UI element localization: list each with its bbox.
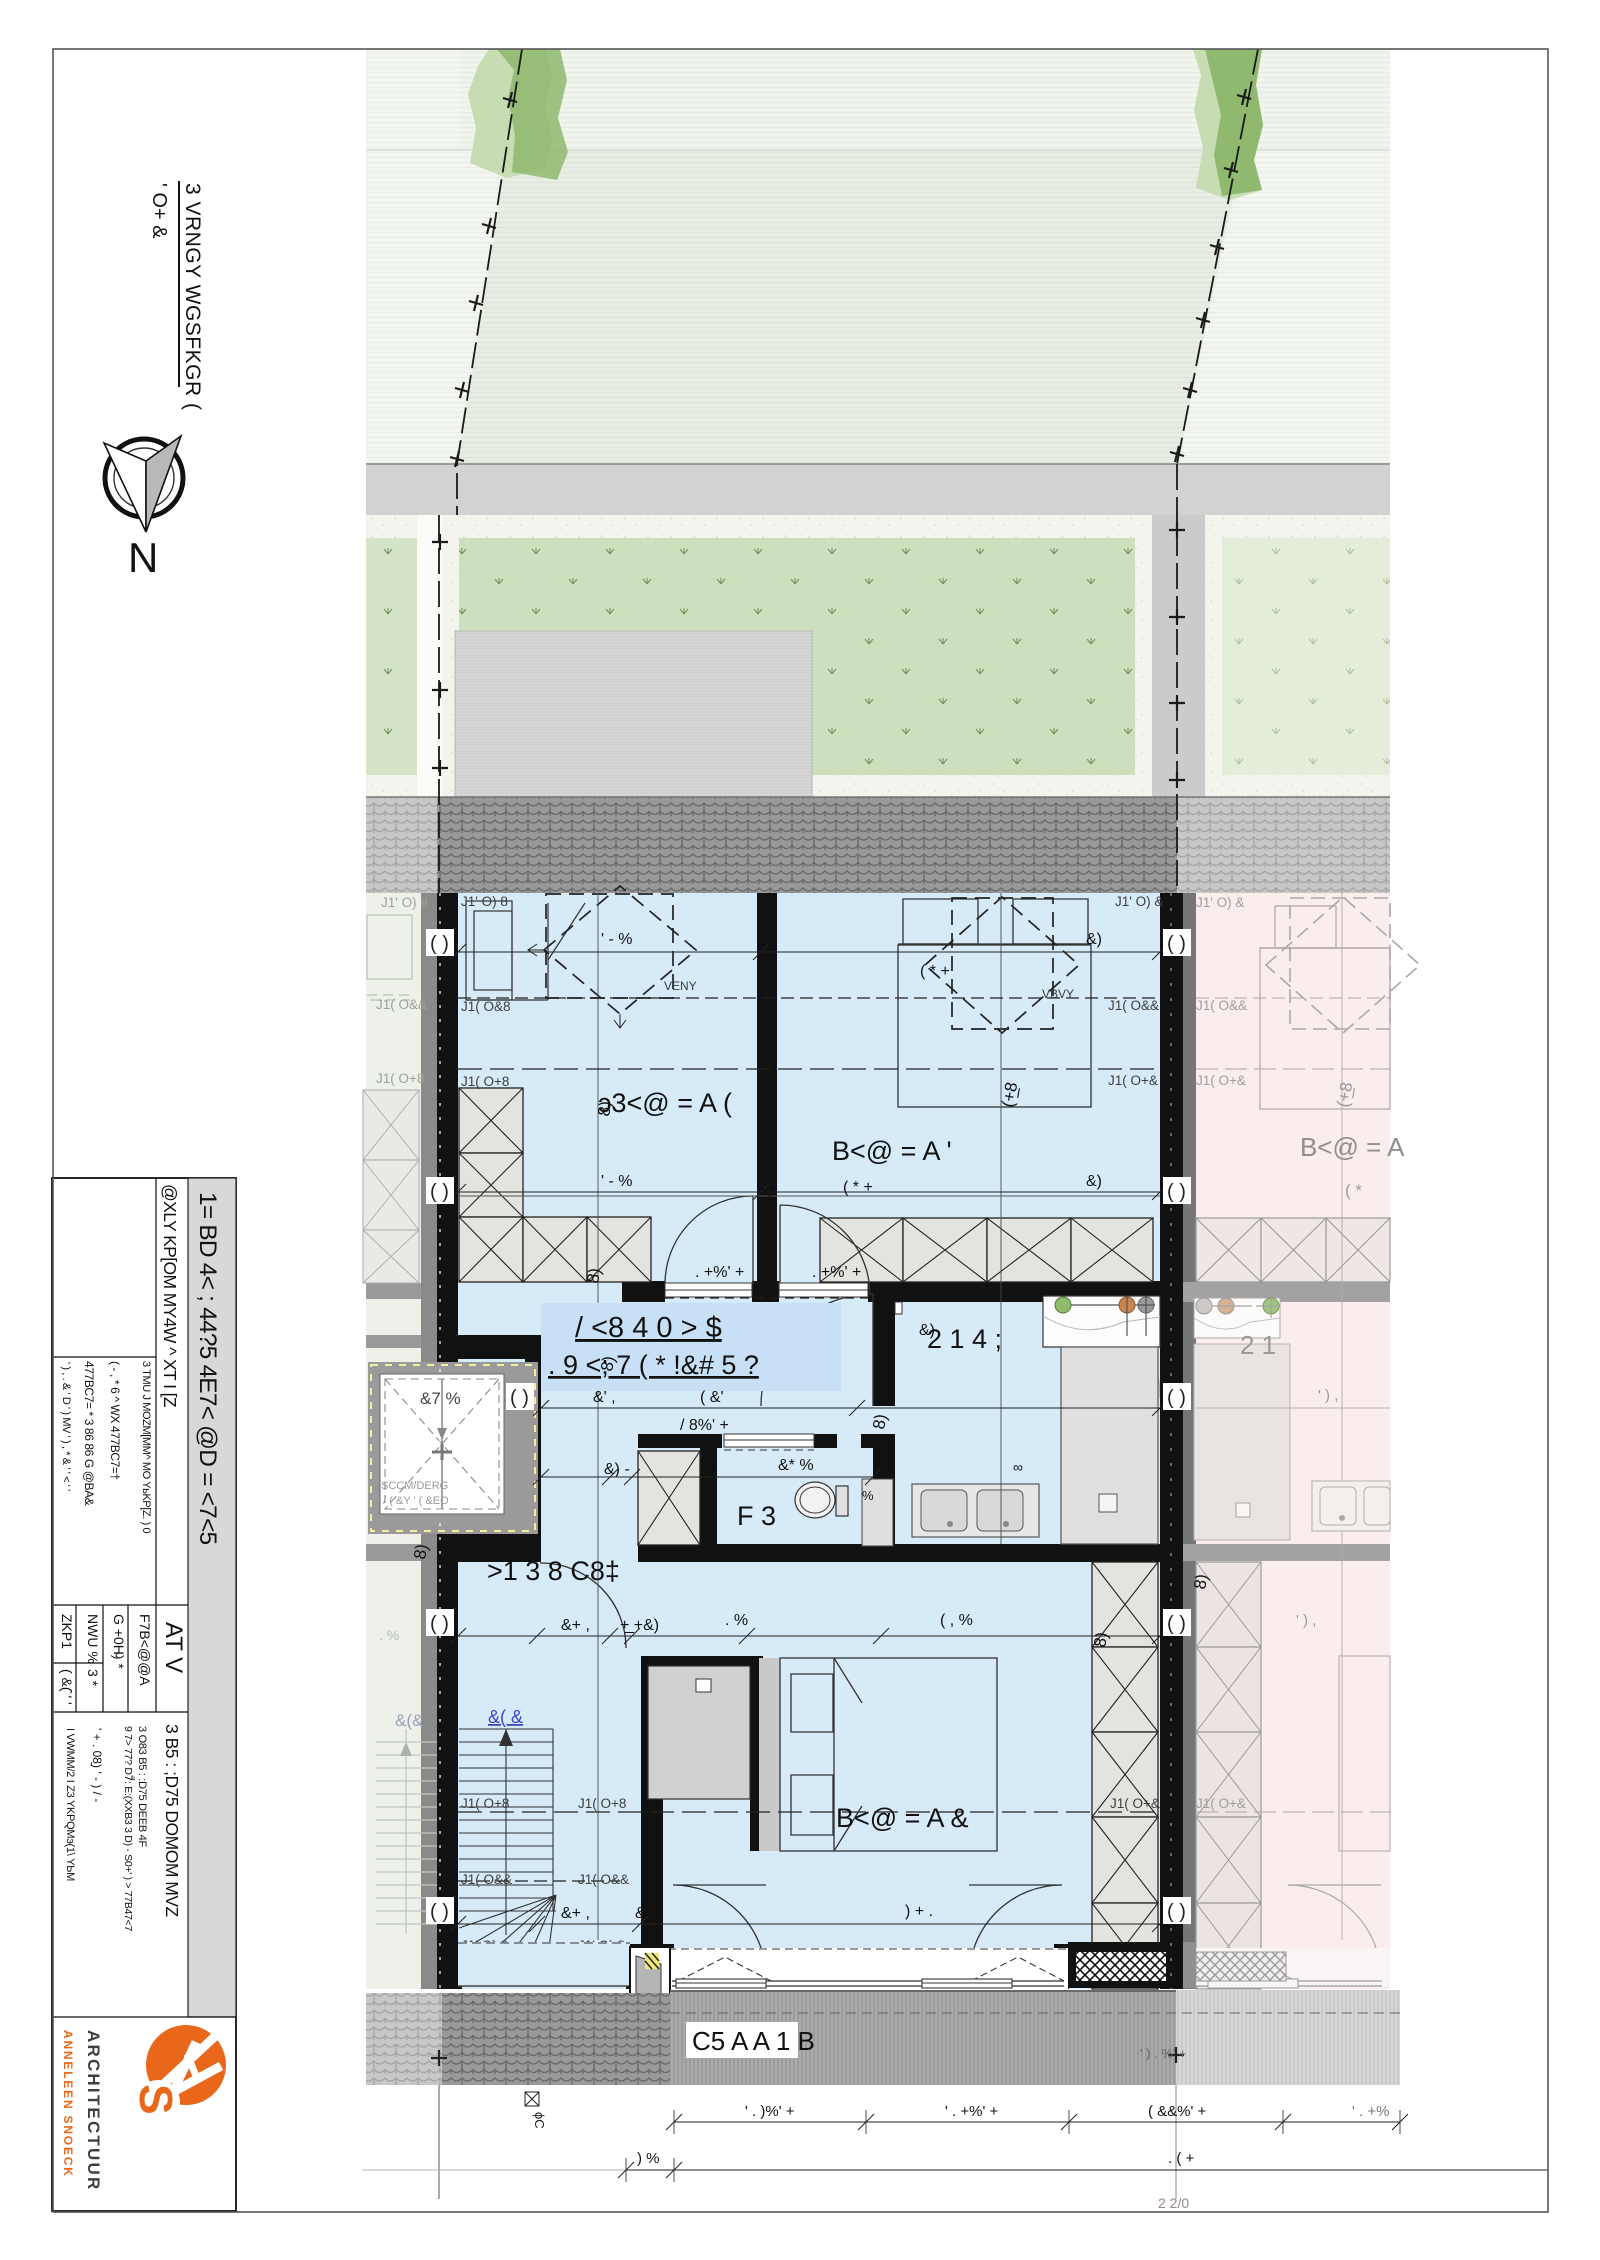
svg-text:' ) . %' +: ' ) . %' + xyxy=(1140,2046,1187,2061)
svg-text:3 *: 3 * xyxy=(85,1669,101,1687)
svg-text:&+ ,: &+ , xyxy=(561,1905,590,1922)
svg-text:SCCM/DERG: SCCM/DERG xyxy=(381,1480,448,1492)
svg-text:( &': ( &' xyxy=(700,1389,724,1406)
svg-text:J1( O+8: J1( O+8 xyxy=(461,1796,509,1811)
svg-text:' - %: ' - % xyxy=(601,931,633,948)
svg-text:1= BD 4< ; 44?5 4E7< @D = <7<: 1= BD 4< ; 44?5 4E7< @D = <7<5 xyxy=(194,1192,221,1544)
svg-text:&( &: &( & xyxy=(488,1707,523,1727)
svg-text:( * +: ( * + xyxy=(843,1179,873,1196)
svg-text:NWU %: NWU % xyxy=(85,1614,101,1664)
svg-text:J1( O&&: J1( O&& xyxy=(578,1872,629,1887)
svg-text:B<@ = A ': B<@ = A ' xyxy=(832,1136,952,1166)
svg-text:. %: . % xyxy=(725,1612,748,1629)
svg-text:( ): ( ) xyxy=(430,933,449,955)
svg-text:J1' O) &: J1' O) & xyxy=(1196,895,1244,910)
svg-text:B<@ = A &: B<@ = A & xyxy=(836,1803,969,1833)
svg-text:F 3: F 3 xyxy=(737,1501,776,1531)
svg-text:2 2/0: 2 2/0 xyxy=(1158,2195,1189,2211)
svg-text:) %: ) % xyxy=(637,2150,660,2167)
svg-text:( ): ( ) xyxy=(510,1387,529,1409)
svg-text:J1( O&&: J1( O&& xyxy=(376,997,427,1012)
svg-text:' - %: ' - % xyxy=(601,1173,633,1190)
svg-text:&): &) xyxy=(635,1905,651,1922)
svg-text:' . +%: ' . +% xyxy=(1352,2103,1389,2120)
svg-text:( ): ( ) xyxy=(430,1901,449,1923)
svg-text:( - , * 6 ^ WX 477BC7=†: ( - , * 6 ^ WX 477BC7=† xyxy=(108,1361,122,1480)
svg-text:J1' O) 8: J1' O) 8 xyxy=(381,895,428,910)
svg-text:&): &) xyxy=(1086,1173,1102,1190)
svg-text:J1( O+8: J1( O+8 xyxy=(578,1796,626,1811)
svg-text:S: S xyxy=(130,2084,182,2115)
svg-text:VBVY: VBVY xyxy=(1042,987,1074,1001)
svg-text:' ) ,: ' ) , xyxy=(1296,1612,1316,1629)
svg-text:' ) ,: ' ) , xyxy=(1318,1387,1338,1404)
svg-text:) + .: ) + . xyxy=(905,1903,933,1920)
svg-text:F7B<@@A: F7B<@@A xyxy=(137,1614,153,1686)
svg-text:J1( O+&: J1( O+& xyxy=(1196,1073,1246,1088)
svg-text:J1( O&&: J1( O&& xyxy=(461,1872,512,1887)
svg-text:3 O83 B5 : :D75 DEEB 4F: 3 O83 B5 : :D75 DEEB 4F xyxy=(136,1726,148,1847)
svg-text:I VWMM/2 I Z3 YKPQMэ(1\ YЬM: I VWMM/2 I Z3 YKPQMэ(1\ YЬM xyxy=(64,1728,76,1881)
svg-text:G +0H̴) *: G +0H̴) * xyxy=(111,1614,127,1669)
svg-text:/ 8%' +: / 8%' + xyxy=(680,1417,729,1434)
svg-text:' + . 08̠) ' - ) / -: ' + . 08̠) ' - ) / - xyxy=(90,1728,104,1802)
svg-text:. +%' +: . +%' + xyxy=(695,1264,744,1281)
svg-text:( * +: ( * + xyxy=(920,963,950,980)
svg-text:>1 3 8 C8‡: >1 3 8 C8‡ xyxy=(487,1556,620,1586)
svg-text:J1( O+&: J1( O+& xyxy=(1108,1073,1158,1088)
svg-text:' O+ &: ' O+ & xyxy=(148,183,170,239)
svg-text:( &&%' +: ( &&%' + xyxy=(1148,2103,1207,2120)
svg-text:&* %: &* % xyxy=(778,1457,814,1474)
svg-text:AT V: AT V xyxy=(160,1622,187,1673)
svg-text:( ): ( ) xyxy=(1167,1613,1186,1635)
svg-text:ϕC: ϕC xyxy=(532,2112,547,2129)
svg-text:&) -: &) - xyxy=(604,1461,630,1478)
svg-text:( ): ( ) xyxy=(1167,1181,1186,1203)
svg-text:' / ( &Y ' ( &EO: ' / ( &Y ' ( &EO xyxy=(378,1495,449,1507)
svg-text:ZKP1: ZKP1 xyxy=(59,1614,75,1649)
svg-text:( ): ( ) xyxy=(430,1613,449,1635)
svg-text:J1( O&8: J1( O&8 xyxy=(461,999,511,1014)
svg-text:( ): ( ) xyxy=(430,1181,449,1203)
svg-text:J1' O) 8: J1' O) 8 xyxy=(461,894,508,909)
svg-text:@XLY KP[OM MY4W ^ XT I [Z: @XLY KP[OM MY4W ^ XT I [Z xyxy=(160,1184,180,1408)
svg-text:477BC7= * 3 86 86 G @BA&: 477BC7= * 3 86 86 G @BA& xyxy=(82,1361,96,1506)
svg-text:' . )%' +: ' . )%' + xyxy=(745,2103,795,2120)
svg-text:N: N xyxy=(128,534,158,581)
svg-text:. ( +: . ( + xyxy=(1168,2150,1194,2167)
svg-text:&): &) xyxy=(1086,931,1102,948)
svg-text:J1( O+8: J1( O+8 xyxy=(461,1074,509,1089)
svg-text:2 1 4 ;: 2 1 4 ; xyxy=(927,1324,1002,1354)
svg-text:ARCHITECTUUR: ARCHITECTUUR xyxy=(84,2030,103,2191)
svg-text:J1' O) &: J1' O) & xyxy=(1115,894,1163,909)
svg-text:%: % xyxy=(862,1488,874,1503)
svg-text:&(&: &(& xyxy=(395,1711,424,1730)
svg-text:9 7> 77? D7⃗: E:(XXB3 3 D) -: 9 7> 77? D7⃗: E:(XXB3 3 D) - S0+' ) > 77… xyxy=(122,1726,136,1931)
svg-text:C5 A A 1 B: C5 A A 1 B xyxy=(692,2026,815,2056)
svg-text:3 VRNGY WGSFKGR (: 3 VRNGY WGSFKGR ( xyxy=(181,183,204,410)
svg-text:J1( O&&: J1( O&& xyxy=(1196,998,1247,1013)
svg-text:3 B5 : ;D75 DOMOM MVZ: 3 B5 : ;D75 DOMOM MVZ xyxy=(162,1724,182,1918)
svg-text:+̲ +&): +̲ +&) xyxy=(620,1617,659,1634)
svg-text:' . +%' +: ' . +%' + xyxy=(945,2103,998,2120)
svg-text:2 1: 2 1 xyxy=(1240,1330,1276,1360)
svg-text:&' ,: &' , xyxy=(593,1389,616,1406)
svg-text:&+ ,: &+ , xyxy=(561,1617,590,1634)
svg-text:( *: ( * xyxy=(1345,1181,1362,1200)
svg-text:( , %: ( , % xyxy=(940,1612,973,1629)
svg-text:&): &) xyxy=(919,1322,935,1339)
svg-text:. 9 <; 7 ( * !&# 5 ?: . 9 <; 7 ( * !&# 5 ? xyxy=(548,1350,759,1380)
svg-text:&): &) xyxy=(700,1459,716,1476)
svg-text:J1( O+&: J1( O+& xyxy=(1110,1796,1160,1811)
svg-text:( ): ( ) xyxy=(1167,933,1186,955)
svg-text:B<@ = A: B<@ = A xyxy=(1300,1132,1405,1162)
svg-text:( ): ( ) xyxy=(1167,1901,1186,1923)
svg-text:3 TMU J MOZM[MM^ MO YьKP[Z. ): 3 TMU J MOZM[MM^ MO YьKP[Z. ) 0 xyxy=(140,1361,152,1534)
svg-text:ɔ3<@ = A (: ɔ3<@ = A ( xyxy=(598,1088,732,1118)
svg-text:ANNELEEN SNOECK: ANNELEEN SNOECK xyxy=(61,2030,75,2178)
svg-text:J1( O+8: J1( O+8 xyxy=(376,1071,424,1086)
svg-text:∞: ∞ xyxy=(1013,1459,1023,1475)
svg-text:( ): ( ) xyxy=(1167,1387,1186,1409)
svg-text:VENY: VENY xyxy=(664,979,697,993)
svg-text:( &(̑ ' ': ( &(̑ ' ' xyxy=(59,1669,75,1705)
svg-text:&): &) xyxy=(758,1180,774,1197)
svg-text:. %: . % xyxy=(379,1627,399,1643)
svg-text:J1( O+&: J1( O+& xyxy=(1196,1796,1246,1811)
svg-text:' ) , . & ' D ' ) MV ' ) , *: ' ) , . & ' D ' ) MV ' ) , * & ' ' < ' ' xyxy=(60,1362,72,1491)
svg-text:J1( O&&: J1( O&& xyxy=(1108,998,1159,1013)
svg-text:/ <8 4 0 > $: / <8 4 0 > $ xyxy=(575,1312,722,1344)
svg-text:. +%' +: . +%' + xyxy=(812,1264,861,1281)
